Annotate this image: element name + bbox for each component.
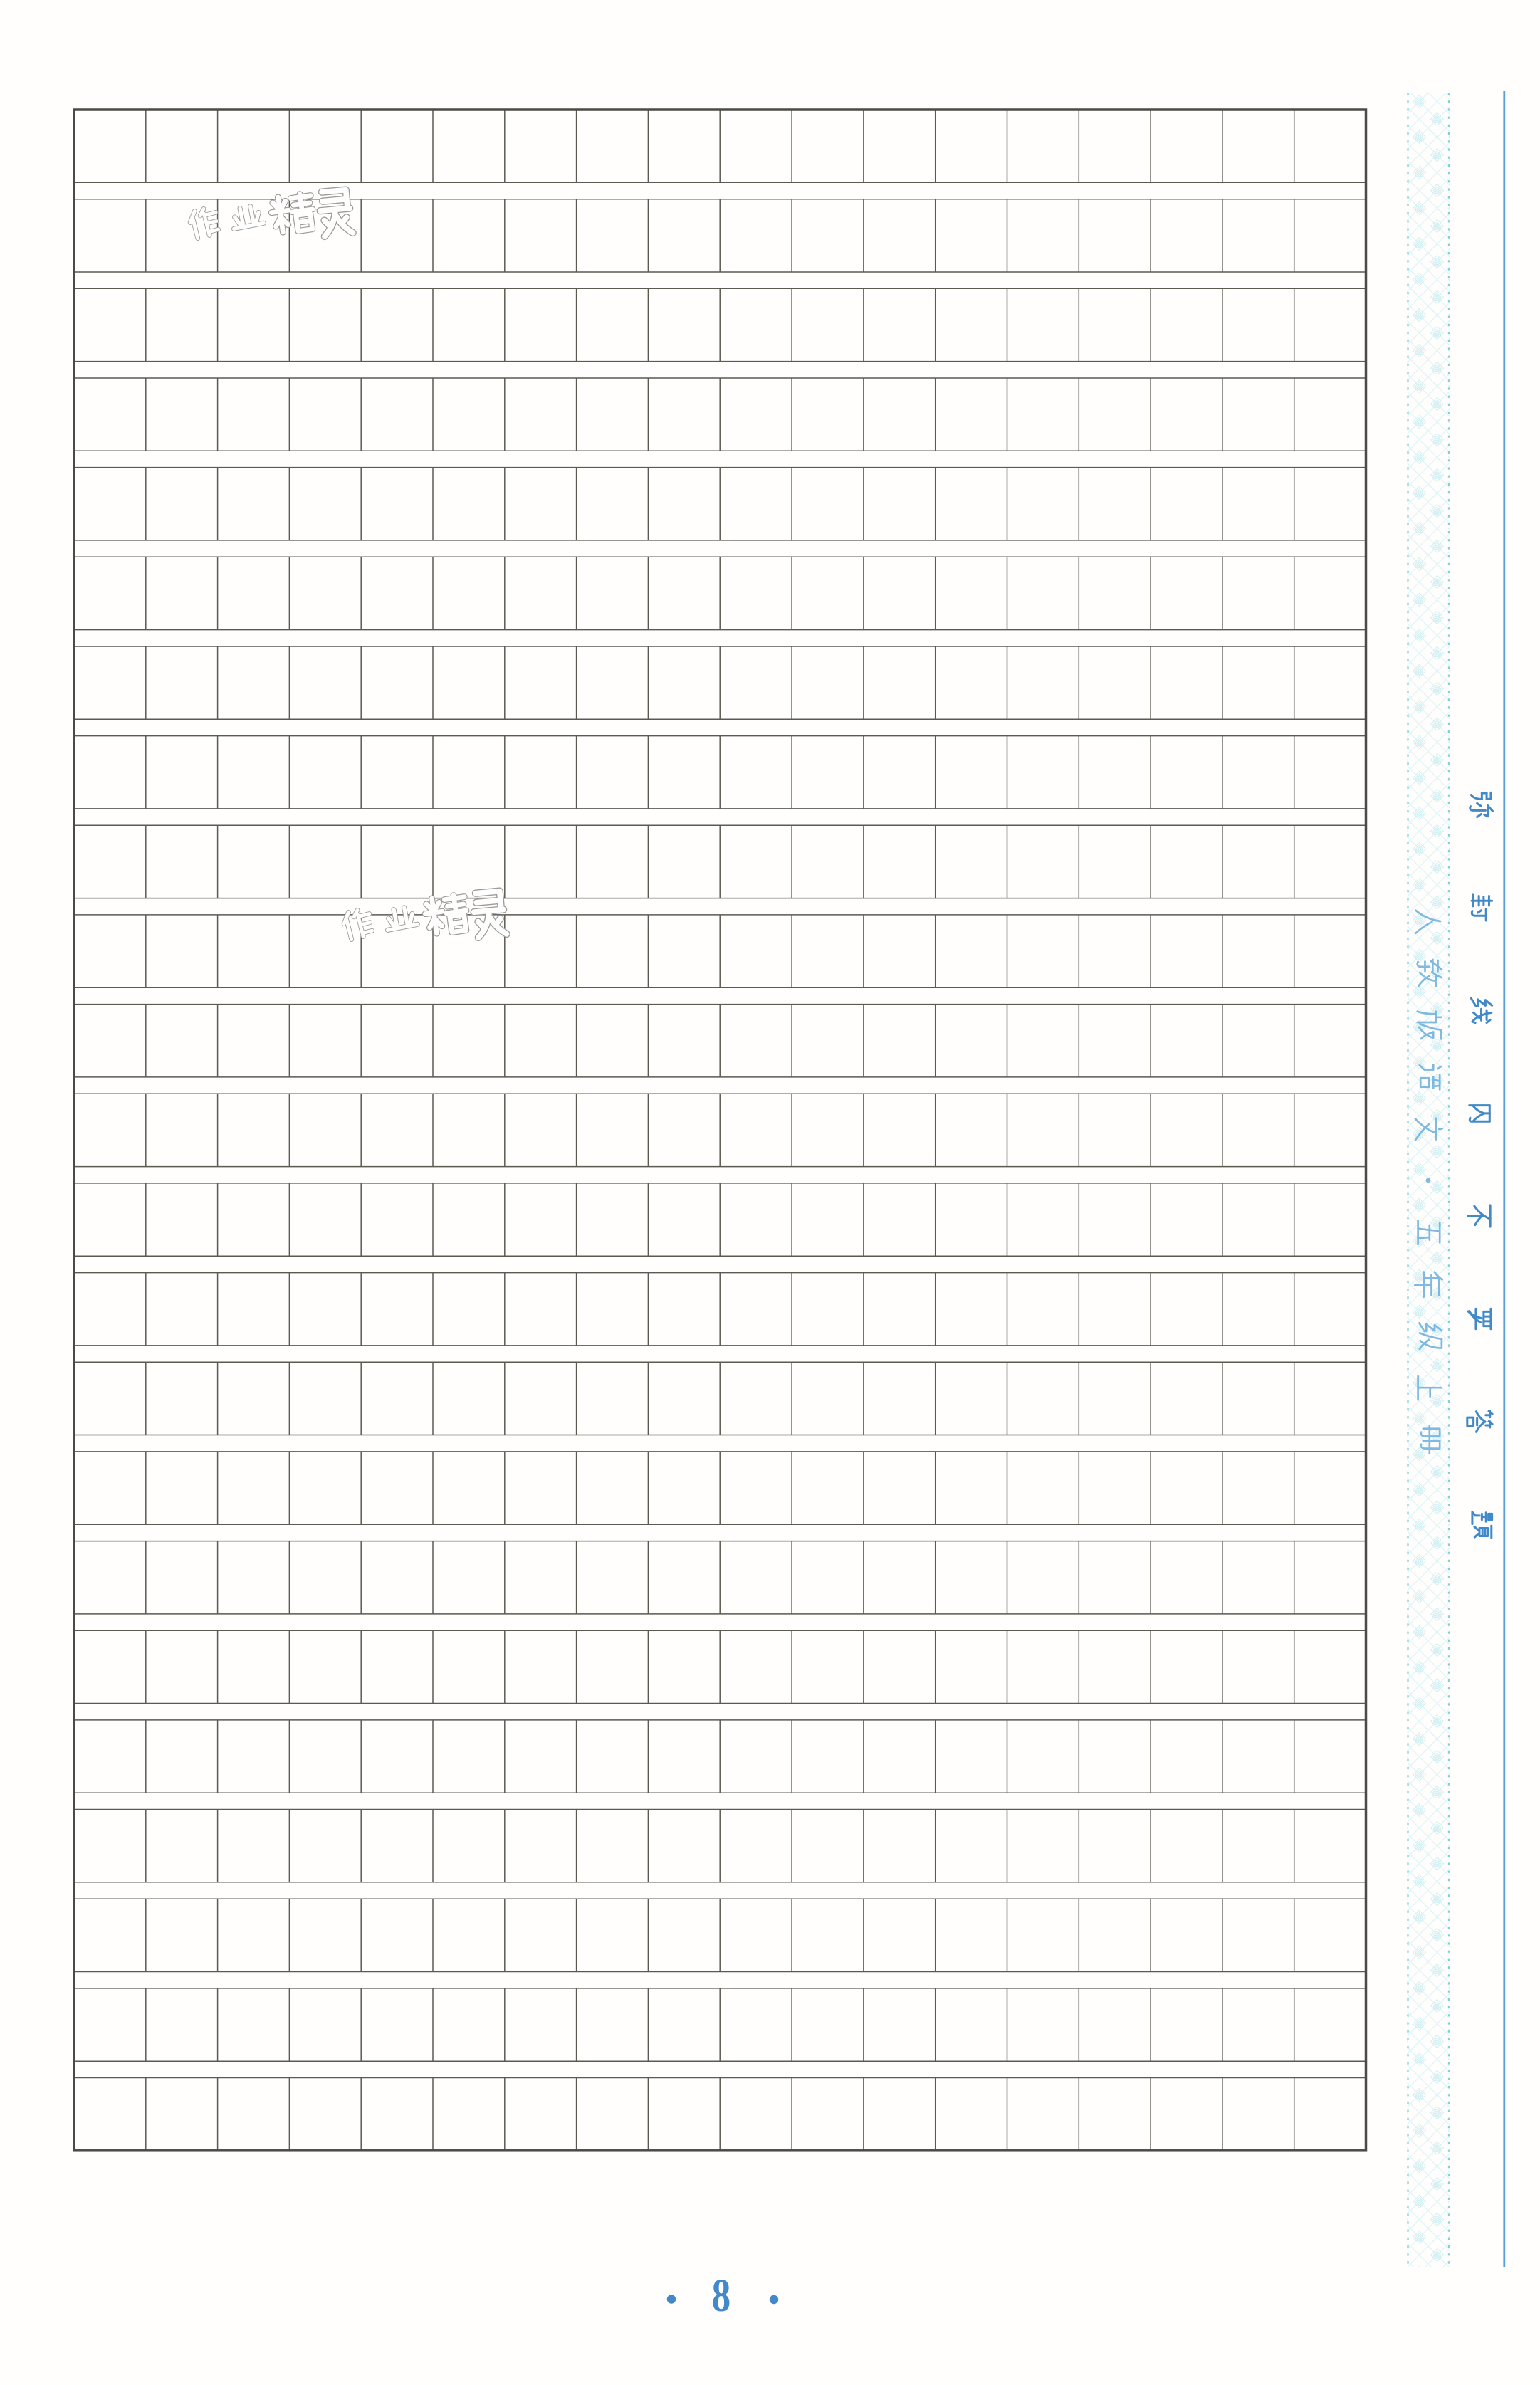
svg-text:8: 8 — [712, 2269, 730, 2321]
